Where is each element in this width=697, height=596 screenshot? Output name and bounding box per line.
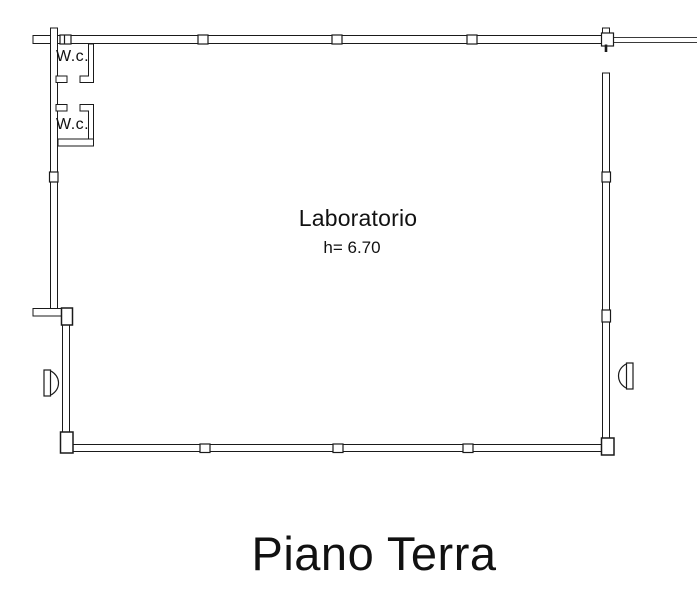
room-ceiling-height: h= 6.70 xyxy=(302,239,402,256)
wall-top xyxy=(33,36,613,44)
room-name-laboratorio: Laboratorio xyxy=(258,207,458,230)
wall-wc-stub-lower xyxy=(56,105,67,112)
wall-left-upper xyxy=(51,28,58,309)
wall-left-lower xyxy=(63,316,70,445)
wc-room-label-bottom: W.c. xyxy=(56,117,89,133)
floor-plan-drawing xyxy=(0,0,697,596)
wall-top-thin-extension xyxy=(613,38,697,43)
floor-title: Piano Terra xyxy=(224,530,524,577)
floor-plan-canvas: W.c. W.c. Laboratorio h= 6.70 Piano Terr… xyxy=(0,0,697,596)
junction-top-right xyxy=(602,33,614,46)
corner-bottom-left xyxy=(61,432,74,453)
wall-wc-stub-upper xyxy=(56,76,67,83)
wc-room-label-top: W.c. xyxy=(56,49,89,65)
window-symbol-left xyxy=(44,370,59,396)
wall-wc-bottom xyxy=(58,139,94,146)
window-symbol-right xyxy=(619,363,634,389)
corner-bottom-right xyxy=(602,438,615,455)
wall-right xyxy=(603,73,610,445)
junction-left-stub xyxy=(62,308,73,325)
